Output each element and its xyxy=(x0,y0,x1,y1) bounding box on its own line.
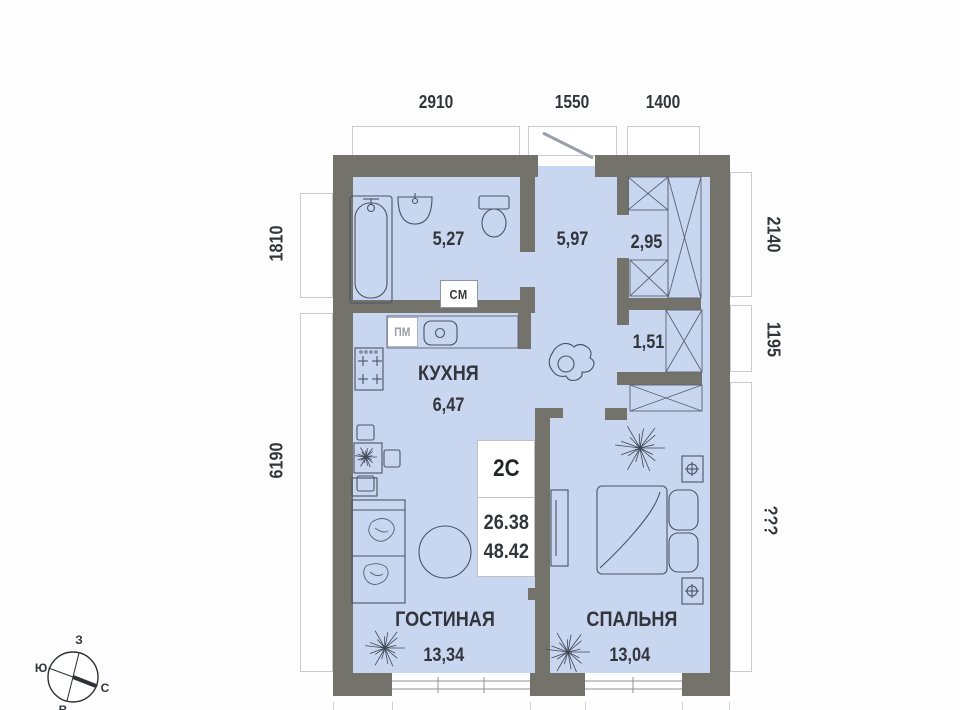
unit-info-box: 2С 26.38 48.42 xyxy=(477,440,535,577)
kitchen-area: 6,47 xyxy=(388,395,508,417)
dim-box-top-2 xyxy=(528,126,617,156)
compass-icon xyxy=(48,652,98,702)
wall-bath-right-low xyxy=(520,287,535,300)
unit-living-area: 26.38 xyxy=(483,511,528,535)
dim-box-right-1 xyxy=(730,172,752,297)
living-name: ГОСТИНАЯ xyxy=(365,608,525,632)
entry-floor xyxy=(538,166,595,178)
bedroom-area: 13,04 xyxy=(550,645,710,667)
dim-box-top-3 xyxy=(627,126,700,156)
kitchen-name: КУХНЯ xyxy=(388,362,508,386)
tick xyxy=(333,702,334,710)
compass-south: Ю xyxy=(31,661,51,675)
wall-bottom-pier-3 xyxy=(682,673,730,696)
dim-right-3: ??? xyxy=(760,471,781,570)
dishwasher-label: ПМ xyxy=(394,325,410,339)
wall-living-bedroom-top-stub xyxy=(550,408,563,418)
compass-east: В xyxy=(53,703,73,710)
unit-badge: 2С xyxy=(493,455,519,483)
closet-area: 2,95 xyxy=(606,232,686,254)
wall-closet-stub-a xyxy=(617,177,629,215)
wall-right xyxy=(710,155,730,696)
dim-right-2: 1195 xyxy=(763,290,784,389)
wall-bottom-pier-2 xyxy=(530,673,585,696)
wall-left xyxy=(333,155,353,696)
wall-closet-divider xyxy=(617,298,701,310)
floor-plan: СМ ПМ 2С 26.38 48.42 xyxy=(0,0,960,710)
dim-left-1: 1810 xyxy=(267,194,288,293)
dim-box-left-2 xyxy=(300,313,333,672)
tick xyxy=(530,702,531,710)
wall-living-bedroom xyxy=(535,408,550,675)
wall-niche-bottom xyxy=(617,372,702,385)
dishwasher-box: ПМ xyxy=(387,317,418,347)
compass-west: З xyxy=(69,633,89,647)
tick xyxy=(729,702,730,710)
unit-total-area: 48.42 xyxy=(483,540,528,564)
wall-top-left xyxy=(333,155,538,177)
washing-machine-label: СМ xyxy=(450,287,468,302)
dim-box-left-1 xyxy=(300,193,333,298)
dim-box-top-1 xyxy=(352,126,520,156)
tick xyxy=(585,702,586,710)
dim-top-3: 1400 xyxy=(627,92,700,113)
dim-right-1: 2140 xyxy=(763,185,784,284)
dim-left-2: 6190 xyxy=(267,411,288,510)
niche-area: 1,51 xyxy=(608,332,688,354)
hall-area: 5,97 xyxy=(532,229,612,251)
wall-closet-stub-b xyxy=(617,258,629,325)
wall-kitchen-right xyxy=(518,313,531,349)
bedroom-name: СПАЛЬНЯ xyxy=(552,608,712,632)
dim-top-2: 1550 xyxy=(528,92,617,113)
tick xyxy=(392,702,393,710)
wall-living-bedroom-jog xyxy=(528,588,535,600)
dim-top-1: 2910 xyxy=(352,92,520,113)
window-living xyxy=(392,673,530,696)
window-bedroom xyxy=(585,673,682,696)
wall-bottom-pier-1 xyxy=(333,673,392,696)
tick xyxy=(682,702,683,710)
living-area: 13,34 xyxy=(364,645,524,667)
wall-bedroom-door-stub xyxy=(605,408,627,420)
compass-north: С xyxy=(95,681,115,695)
bathroom-area: 5,27 xyxy=(408,229,488,251)
washing-machine-box: СМ xyxy=(440,280,478,308)
dim-box-right-2 xyxy=(730,305,752,372)
dim-box-right-3 xyxy=(730,382,752,672)
